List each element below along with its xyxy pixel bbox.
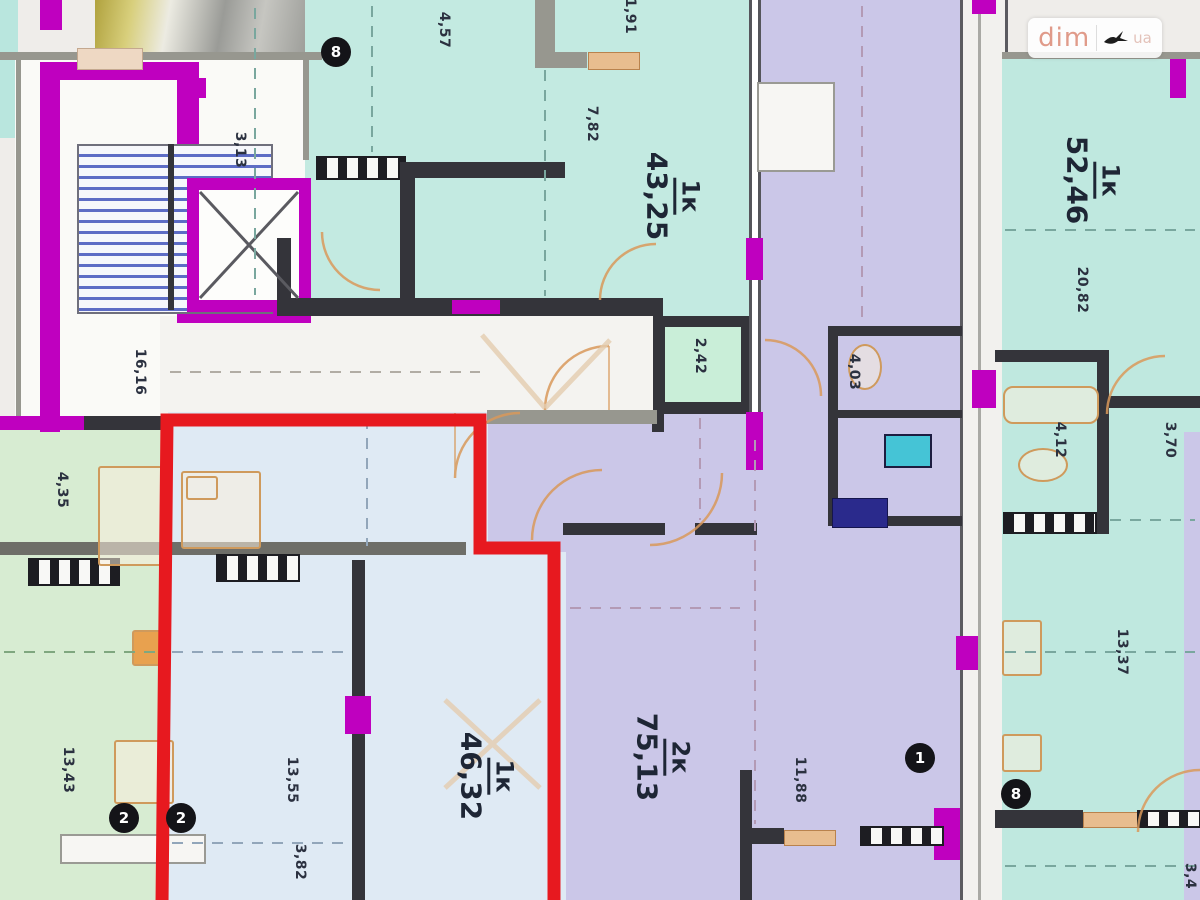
floor-plan: 1к 43,25 1к 52,46 2к 75,13 1к 46,32 3,13… — [0, 0, 1200, 900]
wall — [653, 316, 753, 327]
wall — [828, 410, 962, 418]
dim-label: 1,91 — [622, 0, 638, 34]
apartment-unit: 1к — [1093, 161, 1122, 198]
wall — [563, 523, 665, 535]
wall — [653, 402, 753, 414]
wall-accent — [972, 0, 996, 14]
watermark-brand: dim — [1038, 23, 1090, 53]
wall-accent — [746, 412, 763, 470]
wall — [995, 810, 1083, 828]
furniture — [1002, 734, 1042, 772]
axis-marker: 2 — [109, 803, 139, 833]
axis-marker: 2 — [166, 803, 196, 833]
wall-accent — [40, 62, 60, 432]
dimension-chip — [77, 48, 143, 70]
wall — [84, 416, 168, 430]
door — [588, 52, 640, 70]
wall-accent — [40, 0, 62, 30]
apartment-unit: 1к — [673, 177, 702, 214]
wall — [535, 0, 555, 58]
axis-marker-label: 2 — [119, 809, 129, 827]
apartment-label-52-46: 1к 52,46 — [1062, 136, 1123, 225]
wall — [828, 326, 838, 526]
watermark-tld: ua — [1133, 29, 1152, 47]
wall — [752, 828, 784, 844]
right-shaft-inner-line — [978, 0, 981, 900]
wall-accent — [452, 300, 500, 314]
elevator-shaft — [187, 178, 311, 312]
dim-label: 3,70 — [1162, 422, 1178, 459]
dim-label: 3,82 — [292, 844, 308, 881]
window — [1003, 512, 1097, 534]
wall — [400, 162, 415, 300]
axis-marker-label: 8 — [331, 43, 341, 61]
dim-label: 4,03 — [846, 354, 862, 391]
window — [1137, 810, 1200, 828]
right-wall-shaft — [960, 0, 1008, 900]
staircase-divider — [168, 144, 174, 310]
wall — [695, 523, 757, 535]
wall-accent — [0, 416, 84, 430]
axis-marker: 8 — [1001, 779, 1031, 809]
apartment-unit: 2к — [663, 738, 692, 775]
axis-marker-label: 8 — [1011, 785, 1021, 803]
shaft-box — [757, 82, 835, 172]
wall-accent — [972, 370, 996, 408]
washing-machine — [884, 434, 932, 468]
kitchen-sink — [114, 740, 174, 804]
apartment-area: 43,25 — [642, 152, 671, 241]
dim-label: 4,12 — [1052, 422, 1068, 459]
furniture — [1002, 620, 1042, 676]
axis-marker-label: 1 — [915, 749, 925, 767]
wall-accent — [746, 238, 763, 280]
window — [316, 156, 406, 180]
wall — [653, 316, 665, 414]
wall — [400, 162, 565, 178]
wall — [995, 350, 1109, 362]
dim-label: 3,13 — [232, 132, 248, 169]
axis-marker-label: 2 — [176, 809, 186, 827]
corridor-wall — [749, 0, 761, 412]
apartment-label-43-25: 1к 43,25 — [642, 152, 703, 241]
apartment-unit: 1к — [487, 757, 516, 794]
apartment-area: 46,32 — [456, 732, 485, 821]
dim-label: 3,4 — [1182, 863, 1198, 889]
balcony-rail — [60, 834, 206, 864]
dim-label: 13,43 — [60, 747, 76, 794]
dim-label: 20,82 — [1074, 267, 1090, 314]
dim-label: 4,57 — [436, 12, 452, 49]
lavender-right-strip — [1184, 432, 1200, 900]
bathtub — [1003, 386, 1099, 424]
apartment-area: 52,46 — [1062, 136, 1091, 225]
door — [784, 830, 836, 846]
door — [1083, 812, 1139, 828]
wall — [303, 55, 309, 160]
bath-fixture — [832, 498, 888, 528]
dim-label: 7,82 — [584, 106, 600, 143]
bed-pillow — [186, 476, 218, 500]
wall-accent — [345, 696, 371, 734]
dim-label: 4,35 — [54, 472, 70, 509]
window — [216, 554, 300, 582]
axis-marker: 8 — [321, 37, 351, 67]
watermark-divider — [1096, 25, 1097, 51]
bird-icon — [1103, 30, 1129, 46]
axis-marker: 1 — [905, 743, 935, 773]
apartment-label-75-13: 2к 75,13 — [632, 713, 693, 802]
wall — [1097, 350, 1109, 534]
stove — [132, 630, 170, 666]
apartment-area: 75,13 — [632, 713, 661, 802]
top-outer-wall — [0, 52, 322, 60]
watermark: dim ua — [1028, 18, 1162, 58]
wall — [740, 770, 752, 900]
wall-accent — [956, 636, 978, 670]
dim-label: 11,88 — [792, 757, 808, 804]
kitchen-unit — [98, 466, 168, 566]
left-outer-wall — [16, 60, 21, 422]
dim-label: 13,37 — [1114, 629, 1130, 676]
dim-label: 2,42 — [692, 338, 708, 375]
wall — [828, 326, 962, 336]
window — [860, 826, 944, 846]
apartment-label-46-32: 1к 46,32 — [456, 732, 517, 821]
wall — [1107, 396, 1200, 408]
wall — [535, 52, 587, 68]
wall — [487, 410, 657, 424]
dim-label: 16,16 — [132, 349, 148, 396]
dim-label: 13,55 — [284, 757, 300, 804]
hallway-strip — [160, 316, 655, 416]
